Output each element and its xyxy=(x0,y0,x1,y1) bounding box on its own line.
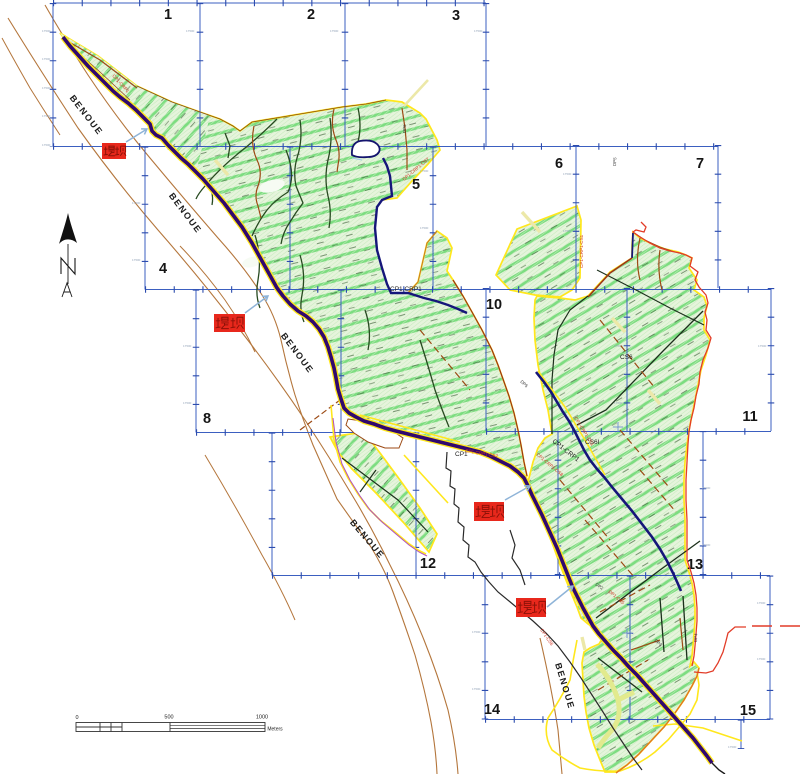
svg-text:10: 10 xyxy=(486,297,502,313)
svg-text:12: 12 xyxy=(420,556,436,572)
svg-text:14: 14 xyxy=(484,702,500,718)
svg-text:3: 3 xyxy=(452,8,460,24)
svg-text:17500: 17500 xyxy=(42,57,51,61)
svg-text:17500: 17500 xyxy=(614,401,623,405)
svg-text:17500: 17500 xyxy=(420,226,429,230)
svg-text:17500: 17500 xyxy=(474,29,483,33)
svg-text:17500: 17500 xyxy=(183,401,192,405)
svg-text:17500: 17500 xyxy=(472,687,481,691)
svg-text:17500: 17500 xyxy=(420,169,429,173)
svg-text:1000: 1000 xyxy=(256,715,268,721)
svg-text:DP6: DP6 xyxy=(402,124,407,133)
svg-text:17500: 17500 xyxy=(132,201,141,205)
svg-text:CP1,CRP1: CP1,CRP1 xyxy=(390,286,422,293)
svg-text:7: 7 xyxy=(696,156,704,172)
svg-text:17500: 17500 xyxy=(702,543,711,547)
svg-text:2: 2 xyxy=(307,7,315,23)
svg-text:11: 11 xyxy=(742,409,757,425)
svg-text:5: 5 xyxy=(412,177,420,193)
svg-text:8: 8 xyxy=(203,411,211,427)
svg-text:17500: 17500 xyxy=(757,657,766,661)
svg-text:15: 15 xyxy=(740,703,756,719)
svg-text:17500: 17500 xyxy=(42,86,51,90)
svg-text:Meters: Meters xyxy=(267,727,283,733)
svg-text:DP5: DP5 xyxy=(612,157,617,166)
svg-text:17500: 17500 xyxy=(186,29,195,33)
svg-text:17500: 17500 xyxy=(472,630,481,634)
svg-text:17500: 17500 xyxy=(757,601,766,605)
svg-text:CS6: CS6 xyxy=(620,354,633,361)
svg-text:1: 1 xyxy=(164,7,172,23)
svg-text:17500: 17500 xyxy=(42,29,51,33)
svg-text:DP4: DP4 xyxy=(693,633,698,642)
svg-text:17500: 17500 xyxy=(42,114,51,118)
svg-text:17500: 17500 xyxy=(563,229,572,233)
svg-text:CP1-CRP1-CS1: CP1-CRP1-CS1 xyxy=(579,234,584,268)
svg-text:17500: 17500 xyxy=(758,344,767,348)
svg-text:17500: 17500 xyxy=(132,258,141,262)
svg-text:17500: 17500 xyxy=(183,344,192,348)
svg-text:17500: 17500 xyxy=(728,745,737,749)
svg-text:17500: 17500 xyxy=(42,143,51,147)
svg-text:6: 6 xyxy=(555,156,563,172)
svg-text:0: 0 xyxy=(75,715,78,721)
svg-text:17500: 17500 xyxy=(563,172,572,176)
svg-text:4: 4 xyxy=(159,261,167,277)
svg-text:17500: 17500 xyxy=(330,29,339,33)
svg-text:500: 500 xyxy=(164,715,173,721)
svg-text:17500: 17500 xyxy=(702,486,711,490)
